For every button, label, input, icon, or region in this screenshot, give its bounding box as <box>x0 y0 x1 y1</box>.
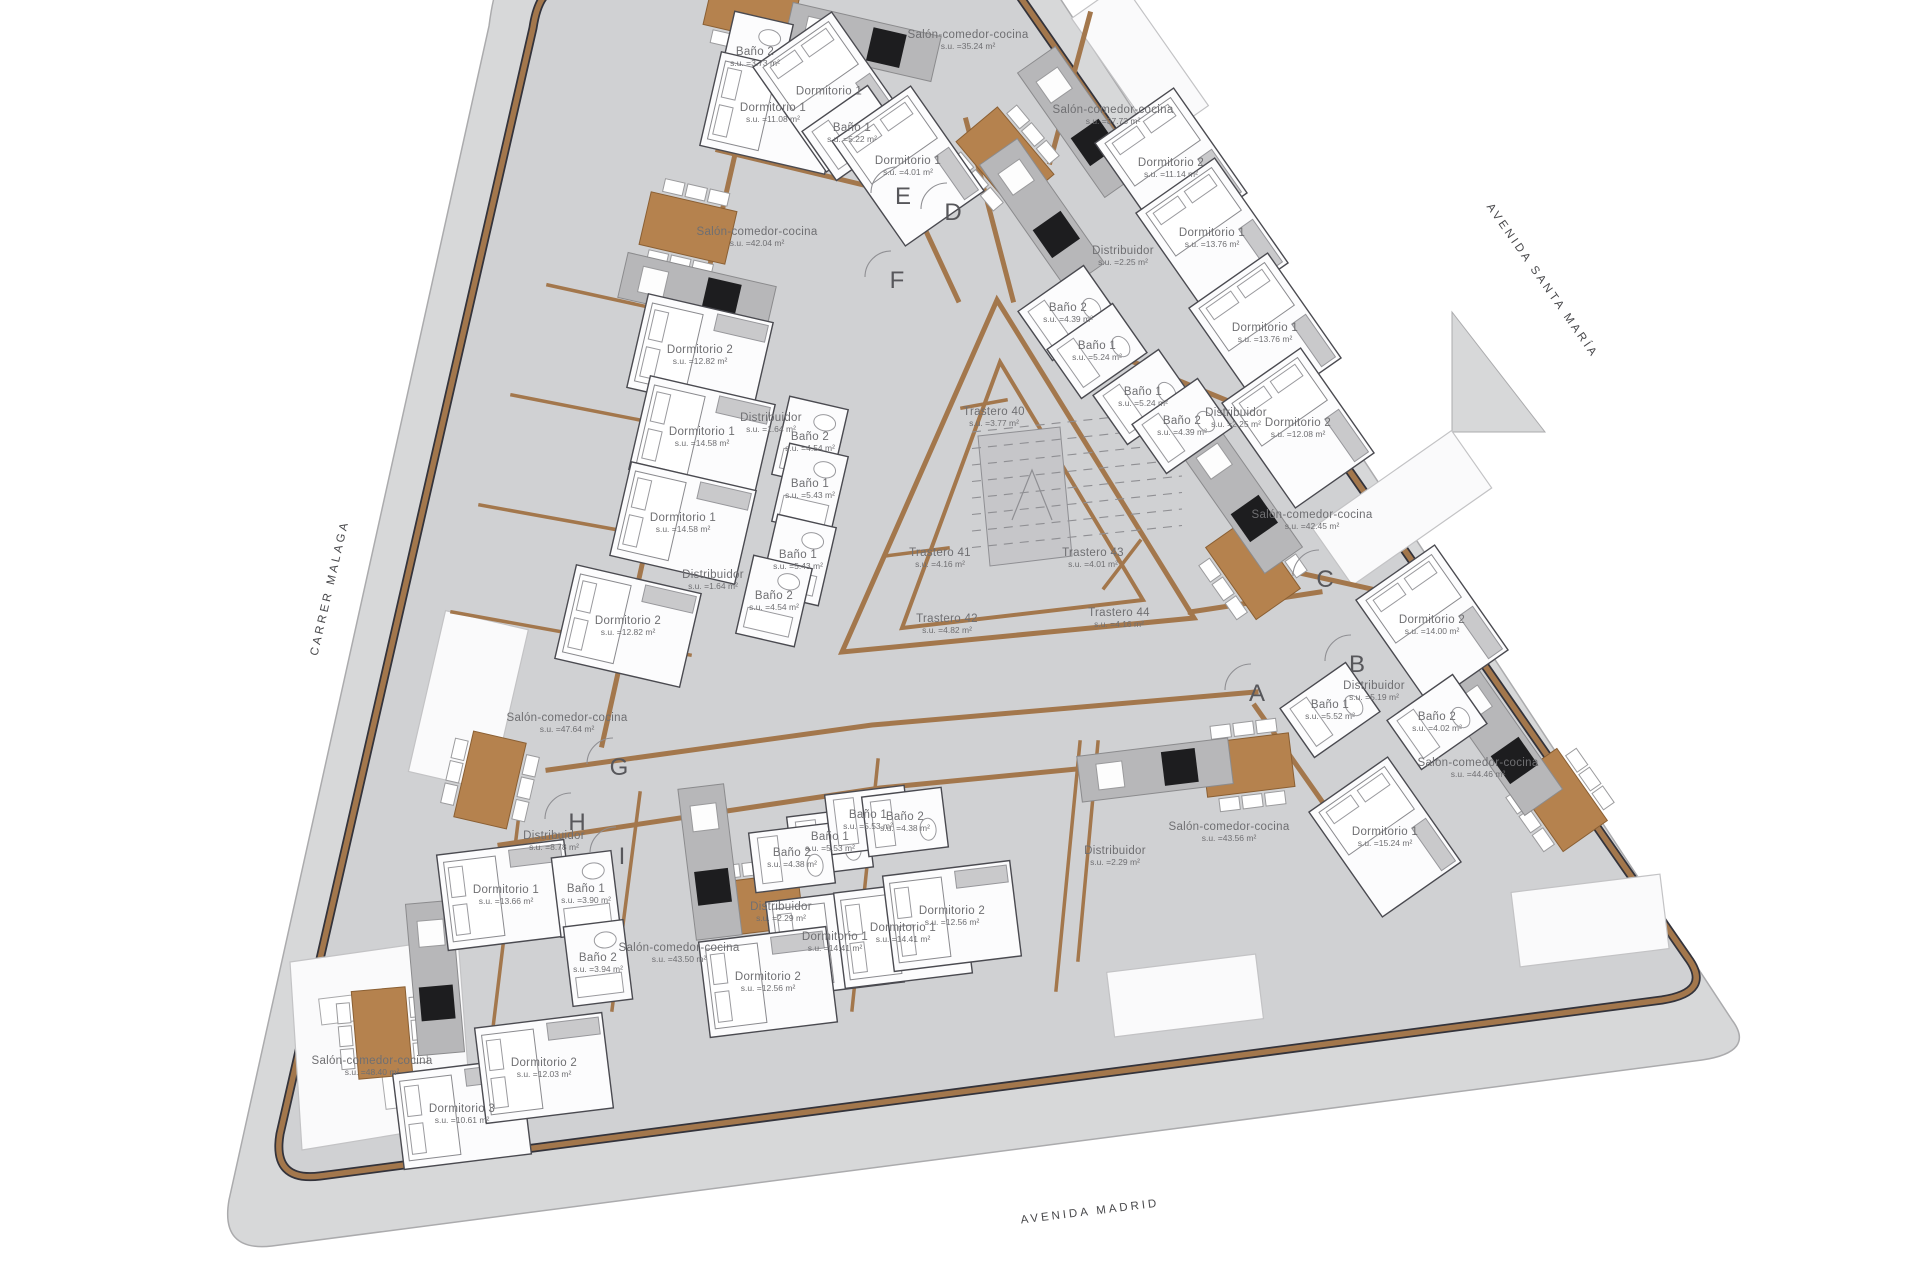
bath-room-shape <box>862 787 949 856</box>
dorm-room-shape <box>475 1013 614 1124</box>
street-corner-island <box>1452 312 1545 432</box>
floor-plan-drawing <box>0 0 1920 1280</box>
dorm-room-shape <box>437 840 576 951</box>
dorm-room-shape <box>699 927 838 1038</box>
bath-room-shape <box>749 823 836 892</box>
floor-plan-canvas: Baño 2s.u. =3.73 m²Dormitorio 1s.u. =11.… <box>0 0 1920 1280</box>
bath-room-shape <box>563 920 632 1007</box>
dorm-room-shape <box>883 861 1022 972</box>
floor-plan-page: { "title": "Planta - plano de distribuci… <box>0 0 1920 1280</box>
